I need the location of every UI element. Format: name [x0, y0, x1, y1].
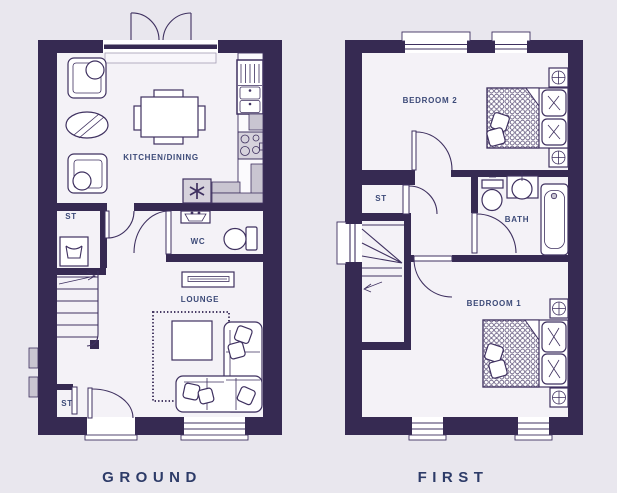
first-floor-plan: BEDROOM 2 ST — [337, 32, 583, 440]
meter-boxes — [29, 348, 38, 397]
ground-floor-title: GROUND — [102, 469, 202, 486]
armchair — [68, 154, 107, 193]
basin-icon — [507, 172, 538, 199]
wc-basin-icon — [181, 211, 210, 223]
floor-plan-image: KITCHEN/DINING ST — [0, 0, 617, 493]
room-label-store-entry: ST — [61, 399, 73, 408]
room-label-wc: WC — [191, 237, 206, 246]
counter-unit — [212, 193, 263, 203]
counter-unit — [251, 164, 263, 194]
room-label-lounge: LOUNGE — [181, 295, 219, 304]
fridge-freezer-icon — [183, 179, 211, 203]
store-door — [72, 387, 77, 414]
floor-plan-page: KITCHEN/DINING ST — [0, 0, 617, 493]
counter-unit — [212, 182, 240, 193]
bathtub-icon — [541, 184, 568, 255]
coffee-table — [172, 321, 212, 360]
ground-floor-plan: KITCHEN/DINING ST — [29, 13, 282, 440]
washing-machine-icon — [60, 237, 88, 266]
appliance — [249, 114, 263, 130]
armchair — [68, 58, 106, 98]
tv-unit — [182, 272, 234, 287]
first-floor-title: FIRST — [418, 469, 489, 486]
toilet-icon — [224, 227, 257, 250]
bedroom2-windows — [402, 32, 530, 53]
hob-icon — [238, 132, 264, 159]
room-label-kitchen-dining: KITCHEN/DINING — [123, 153, 199, 162]
round-rug — [66, 112, 108, 138]
room-label-bath: BATH — [505, 215, 529, 224]
room-label-bedroom2: BEDROOM 2 — [403, 96, 458, 105]
room-label-store: ST — [375, 194, 387, 203]
room-label-store-hall: ST — [65, 212, 77, 221]
toilet-icon — [482, 177, 503, 211]
room-label-bedroom1: BEDROOM 1 — [467, 299, 522, 308]
sink-drainer-icon — [237, 60, 263, 114]
dining-table — [134, 90, 205, 144]
lounge-window — [181, 417, 248, 440]
french-doors — [103, 13, 218, 63]
landing-window — [337, 222, 362, 264]
